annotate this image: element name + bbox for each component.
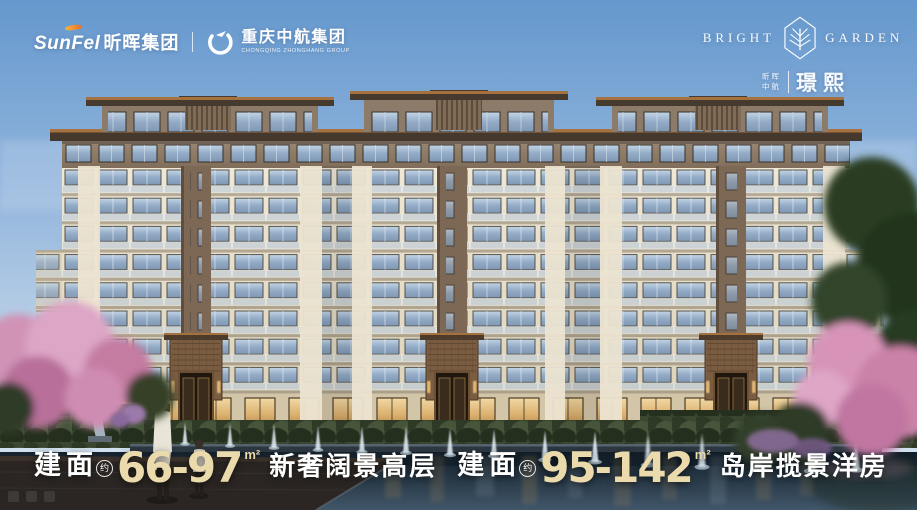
- tagline: 建面 约 66-97 m² 新奢阔景高层 建面 约 95-142 m² 岛岸揽景…: [34, 443, 888, 486]
- badge-divider: [788, 71, 789, 93]
- area-range: 95-142: [540, 450, 692, 486]
- penthouse-left: [86, 96, 334, 132]
- watermark: [8, 491, 55, 502]
- sunfel-logo: SunFel 昕晖集团: [34, 29, 179, 55]
- area-label: 建面: [457, 443, 521, 482]
- approx-circle: 约: [96, 460, 113, 477]
- brand-en-right: GARDEN: [825, 30, 903, 46]
- tagline-segment-flats: 建面 约 95-142 m² 岛岸揽景洋房: [457, 443, 887, 486]
- area-unit: m²: [244, 447, 260, 462]
- project-name: 璟熙: [796, 67, 850, 97]
- brand-badge-english-row: BRIGHT GARDEN: [703, 16, 904, 60]
- brand-badge-cn-row: 昕晖 中航 璟熙: [762, 67, 844, 97]
- brand-cn-small-line2: 中航: [762, 82, 781, 92]
- brand-cn-small-line1: 昕晖: [762, 72, 781, 82]
- brand-en-left: BRIGHT: [703, 30, 775, 46]
- header-logos: SunFel 昕晖集团 重庆中航集团 CHONGQING ZHONGHANG G…: [34, 28, 350, 56]
- zhonghang-name-cn: 重庆中航集团: [241, 30, 350, 46]
- poster: SunFel 昕晖集团 重庆中航集团 CHONGQING ZHONGHANG G…: [0, 0, 917, 510]
- zhonghang-name-en: CHONGQING ZHONGHANG GROUP: [241, 49, 350, 55]
- zhonghang-logo: 重庆中航集团 CHONGQING ZHONGHANG GROUP: [206, 28, 350, 56]
- swoosh-ring-icon: [206, 28, 234, 56]
- sunfel-logo-cn: 昕晖集团: [103, 29, 179, 55]
- area-range: 66-97: [117, 450, 241, 486]
- approx-circle: 约: [519, 460, 536, 477]
- sunfel-logo-en: SunFel: [34, 33, 100, 55]
- penthouse-right: [596, 96, 844, 132]
- penthouse-center: [350, 90, 568, 132]
- brand-cn-small: 昕晖 中航: [762, 72, 781, 92]
- tagline-segment-highrise: 建面 约 66-97 m² 新奢阔景高层: [34, 443, 437, 486]
- area-label: 建面: [34, 443, 98, 482]
- hexagon-tree-emblem-icon: [784, 16, 816, 60]
- brand-badge: BRIGHT GARDEN 昕晖 中航 璟熙: [713, 16, 893, 97]
- product-desc: 岛岸揽景洋房: [720, 446, 888, 483]
- area-unit: m²: [695, 447, 711, 462]
- logo-divider: [192, 32, 193, 52]
- product-desc: 新奢阔景高层: [269, 446, 437, 483]
- zhonghang-text: 重庆中航集团 CHONGQING ZHONGHANG GROUP: [241, 30, 350, 55]
